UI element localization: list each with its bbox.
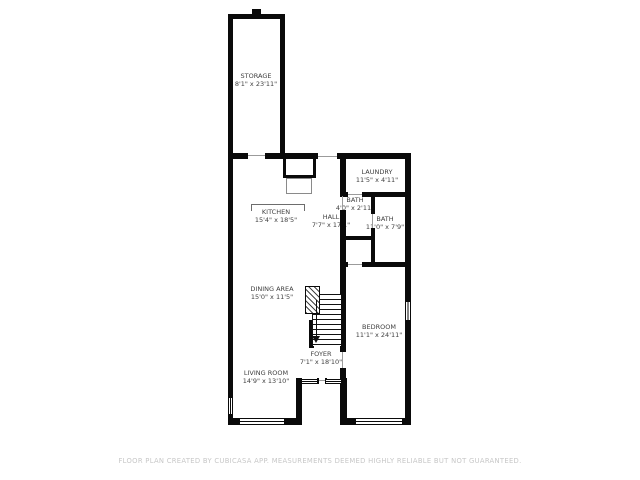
wall-segment	[405, 153, 411, 302]
wall-segment	[228, 153, 233, 398]
door-opening	[342, 352, 343, 368]
room-name: FOYER	[300, 350, 342, 358]
wall-segment	[371, 228, 375, 266]
room-dims: 15'4" x 18'5"	[255, 216, 297, 224]
room-label-bedroom: BEDROOM 11'1" x 24'11"	[356, 323, 402, 339]
wall-segment	[337, 153, 411, 159]
room-label-living: LIVING ROOM 14'9" x 13'10"	[243, 369, 289, 385]
room-dims: 11'1" x 24'11"	[356, 331, 402, 339]
wall-segment	[346, 236, 371, 240]
appliance-outline	[286, 178, 312, 194]
window	[356, 418, 402, 425]
wall-segment	[405, 320, 411, 425]
door-opening	[342, 196, 343, 210]
wall-segment	[228, 14, 285, 19]
closet	[283, 159, 316, 178]
room-dims: 15'0" x 11'5"	[250, 293, 293, 301]
room-dims: 11'5" x 4'11"	[356, 176, 398, 184]
wall-segment	[228, 418, 240, 425]
window	[228, 398, 233, 414]
wall-segment	[252, 9, 261, 14]
room-label-storage: STORAGE 8'1" x 23'11"	[235, 72, 277, 88]
wall-segment	[341, 418, 356, 425]
wall-segment	[280, 14, 285, 153]
stair-direction-line	[316, 300, 317, 336]
wall-segment	[284, 418, 302, 425]
room-name: DINING AREA	[250, 285, 293, 293]
wall-segment	[228, 14, 233, 153]
room-dims: 7'1" x 18'10"	[300, 358, 342, 366]
wall-segment	[317, 378, 319, 384]
floor-plan: STORAGE 8'1" x 23'11" LAUNDRY 11'5" x 4'…	[0, 0, 640, 480]
door-opening	[348, 194, 362, 195]
door-opening	[348, 264, 362, 265]
wall-segment	[362, 262, 411, 267]
wall-segment	[340, 159, 346, 196]
door-opening	[248, 155, 265, 156]
wall-segment	[402, 418, 411, 425]
window	[302, 379, 317, 384]
kitchen-counter	[251, 204, 305, 211]
room-name: LAUNDRY	[356, 168, 398, 176]
door-opening	[372, 214, 373, 228]
footer-disclaimer: FLOOR PLAN CREATED BY CUBICASA APP. MEAS…	[0, 457, 640, 465]
door-opening	[318, 156, 337, 157]
stair-arrow-icon	[312, 336, 320, 343]
window	[405, 302, 411, 320]
room-dims: 14'9" x 13'10"	[243, 377, 289, 385]
door-opening	[319, 380, 325, 381]
window	[240, 418, 284, 425]
wall-segment	[340, 262, 348, 267]
room-label-dining: DINING AREA 15'0" x 11'5"	[250, 285, 293, 301]
room-name: STORAGE	[235, 72, 277, 80]
window	[326, 379, 341, 384]
wall-segment	[362, 192, 411, 197]
room-name: LIVING ROOM	[243, 369, 289, 377]
hatch-chimney	[305, 286, 320, 314]
room-label-laundry: LAUNDRY 11'5" x 4'11"	[356, 168, 398, 184]
room-label-foyer: FOYER 7'1" x 18'10"	[300, 350, 342, 366]
room-name: BEDROOM	[356, 323, 402, 331]
room-dims: 8'1" x 23'11"	[235, 80, 277, 88]
wall-segment	[371, 192, 375, 214]
